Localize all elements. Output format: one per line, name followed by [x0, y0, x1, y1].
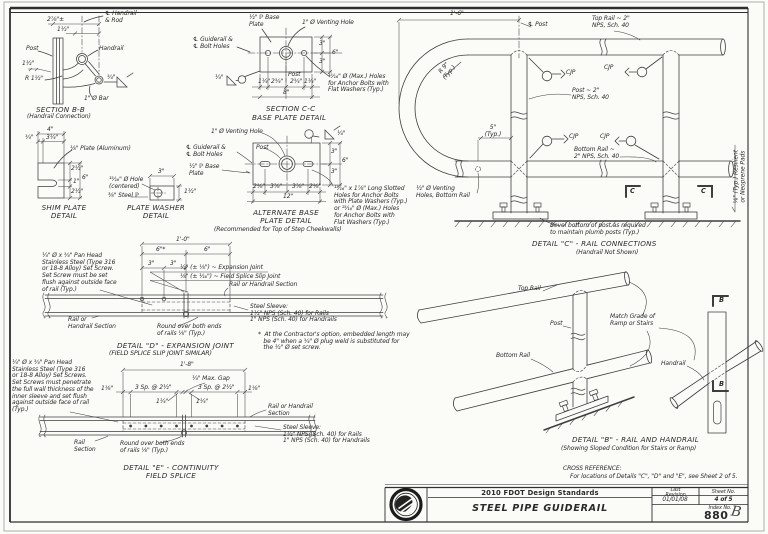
- top-rail-note: Top Rail ~ 2" NPS, Sch. 40: [592, 16, 630, 29]
- index-no-value: 880: [704, 509, 728, 522]
- match-grade-note: Match Grade of Ramp or Stairs: [610, 314, 655, 327]
- dim-label: 3⅞": [270, 184, 282, 191]
- dim-label: 2⅞"±: [47, 17, 64, 24]
- section-cut-mark: C: [701, 188, 706, 195]
- dim-label: 2¾": [290, 79, 302, 86]
- section-bb-drawing: [38, 16, 133, 104]
- sheet-no-value: 4 of 5: [701, 497, 746, 503]
- detail-b-drawing: [417, 271, 764, 433]
- alt-base-plate-subtitle: (Recommended for Top of Step Cheekwalls): [214, 227, 342, 234]
- centerline-note: ℄ Guiderail & ℄ Bolt Holes: [186, 145, 226, 158]
- set-screw-note: ¼" Ø x ¾" Pan Head Stainless Steel (Type…: [42, 253, 117, 293]
- dim-label: 3 Sp. @ 2½": [135, 385, 171, 392]
- detail-c-subtitle: (Handrail Not Shown): [576, 250, 638, 257]
- pads-note: ⅛" (Typ.) Resilient or Neoprene Pads: [733, 141, 746, 213]
- rail-section-note: Rail or Handrail Section: [268, 404, 313, 417]
- dim-label: 4": [47, 127, 53, 134]
- section-cc-drawing: [227, 27, 342, 85]
- section-cut-mark: B: [719, 381, 724, 388]
- plate-washer-title: PLATE WASHER DETAIL: [116, 204, 196, 220]
- dim-label: 1'-0": [176, 237, 190, 244]
- dim-label: 2⅛": [309, 184, 321, 191]
- round-over-note: Round over both ends of rails ⅛" (Typ.): [120, 441, 184, 454]
- post-label: Post: [26, 46, 38, 53]
- detail-d-title: DETAIL "D" - EXPANSION JOINT: [117, 342, 234, 350]
- slotted-holes-note: ¹⁵⁄₁₆" x 1⅞" Long Slotted Holes for Anch…: [334, 186, 408, 226]
- detail-d-subtitle: (FIELD SPLICE SLIP JOINT SIMILAR): [109, 351, 212, 358]
- bottom-rail-label: Bottom Rail: [496, 353, 530, 360]
- detail-c-title: DETAIL "C" - RAIL CONNECTIONS: [532, 240, 657, 248]
- centerline-note: ℄ Guiderail & ℄ Bolt Holes: [193, 37, 233, 50]
- centerline-note: ℄ Post: [528, 22, 547, 29]
- bottom-rail-note: Bottom Rail ~ 2" NPS, Sch. 40: [574, 147, 619, 160]
- cross-reference-text: For locations of Details "C", "D" and "E…: [570, 474, 737, 481]
- dim-label: 6": [342, 158, 348, 165]
- handrail-label: Handrail: [99, 46, 123, 53]
- bar-label: 1" Ø Bar: [84, 96, 109, 103]
- dim-label: 3": [331, 169, 337, 176]
- dim-label: 3": [158, 169, 164, 176]
- drawing-sheet: 2⅞"± 1½" ℄ Handrail & Rod Post Handrail …: [0, 0, 768, 534]
- dim-label: 2⅛": [253, 184, 265, 191]
- venting-note: ½" Ø Venting Holes, Bottom Rail: [416, 186, 470, 199]
- dim-label: 2¾": [271, 79, 283, 86]
- dim-label: 3⅞": [292, 184, 304, 191]
- hole-note: ¹⁵⁄₁₆" Ø Hole (centered): [109, 177, 143, 190]
- plate-washer-dims: [148, 174, 182, 202]
- section-cc-subtitle: BASE PLATE DETAIL: [252, 114, 326, 122]
- plate-note: ⅛" Plate (Aluminum): [70, 146, 131, 153]
- post-label: Post: [256, 145, 268, 152]
- dim-label: 3 Sp. @ 2½": [198, 385, 234, 392]
- section-cc-title: SECTION C-C: [266, 105, 315, 113]
- dim-label: 1½": [57, 27, 69, 34]
- post-note: Post ~ 2" NPS, Sch. 40: [572, 88, 609, 101]
- radius-label: R 1½": [25, 76, 43, 83]
- dim-label: 1⅛": [248, 386, 260, 393]
- rail-section-note: Rail or Handrail Section: [229, 282, 297, 289]
- dim-label: 1⅛": [101, 386, 113, 393]
- set-screw-note: ¼" Ø x ¾" Pan Head Stainless Steel (Type…: [12, 360, 94, 414]
- detail-b-title: DETAIL "B" - RAIL AND HANDRAIL: [572, 436, 699, 444]
- expansion-joint-note: ½" (± ⅛") ~ Expansion Joint: [180, 265, 263, 272]
- section-cut-mark: B: [719, 297, 724, 304]
- dim-label: 2½": [71, 189, 83, 196]
- dim-label: 1'-8": [180, 362, 194, 369]
- dim-label: 1½": [22, 61, 34, 68]
- dim-label: 1'-6": [450, 11, 464, 18]
- last-revision-date: 01/01/08: [653, 497, 697, 503]
- standards-label: 2010 FDOT Design Standards: [430, 489, 650, 497]
- dim-label: 6": [82, 175, 88, 182]
- section-cut-mark: C: [630, 188, 635, 195]
- weld-label: ¾": [107, 75, 115, 82]
- dim-label: ¼" Max. Gap: [192, 376, 230, 383]
- dim-label: 3": [319, 41, 325, 48]
- rail-section-note: Rail Section: [74, 440, 96, 453]
- dim-label: 1½": [184, 189, 196, 196]
- shim-plate-title: SHIM PLATE DETAIL: [28, 204, 100, 220]
- fdot-logo: [391, 490, 421, 520]
- dim-label: 3": [331, 149, 337, 156]
- dim-label: 6": [332, 50, 338, 57]
- dim-label: 5" (Typ.): [482, 125, 504, 138]
- plate-note: ½" ℙ Base Plate: [249, 15, 279, 28]
- dim-label: 6"*: [156, 247, 165, 254]
- plate-note: ½" ℙ Base Plate: [189, 164, 219, 177]
- anchor-holes-note: ¹⁵⁄₁₆" Ø (Max.) Holes for Anchor Bolts w…: [328, 74, 389, 94]
- dim-label: 1¼": [196, 399, 208, 406]
- weld-label: ¼": [337, 131, 345, 138]
- sheet-no-label: Sheet No.: [701, 490, 746, 495]
- dim-label: 3": [170, 261, 176, 268]
- sleeve-note: Steel Sleeve: 1½" NPS (Sch. 40) for Rail…: [283, 425, 370, 445]
- bevel-note: Bevel bottom of post as required to main…: [550, 223, 646, 236]
- weld-cjp-label: CJP: [569, 134, 578, 141]
- round-over-note: Round over both ends of rails ⅛" (Typ.): [157, 324, 221, 337]
- dim-label: 1¼": [258, 79, 270, 86]
- sheet-title: STEEL PIPE GUIDERAIL: [430, 503, 650, 514]
- dim-label: 3¼": [46, 135, 58, 142]
- dim-label: 1¼": [304, 79, 316, 86]
- dim-label: 2½": [71, 166, 83, 173]
- weld-cjp-label: CJP: [604, 65, 613, 72]
- sleeve-note: Steel Sleeve: 1½" NPS (Sch. 40) for Rail…: [250, 304, 337, 324]
- handrail-label: Handrail: [661, 361, 685, 368]
- dim-label: ¾": [25, 135, 33, 142]
- rail-section-note: Rail or Handrail Section: [68, 317, 116, 330]
- dim-label: 3": [319, 59, 325, 66]
- weld-cjp-label: CJP: [566, 70, 575, 77]
- detail-e-dims: [116, 368, 252, 417]
- detail-e-title: DETAIL "E" - CONTINUITY FIELD SPLICE: [105, 464, 237, 480]
- detail-b-subtitle: (Showing Sloped Condition for Stairs or …: [561, 446, 696, 453]
- contractor-option-note: * At the Contractor's option, embedded l…: [258, 332, 410, 352]
- alt-base-plate-title: ALTERNATE BASE PLATE DETAIL: [240, 209, 332, 225]
- weld-label: ¼": [215, 75, 223, 82]
- venting-note: 1" Ø Venting Hole: [211, 129, 263, 136]
- dim-label: 12": [283, 194, 293, 201]
- centerline-note: ℄ Handrail & Rod: [105, 11, 137, 24]
- weld-cjp-label: CJP: [600, 134, 609, 141]
- post-label: Post: [550, 321, 562, 328]
- section-bb-subtitle: (Handrail Connection): [27, 114, 91, 121]
- dim-label: 3": [148, 261, 154, 268]
- slip-joint-note: ⅛" (± ¹⁄₁₆") ~ Field Splice Slip Joint: [180, 274, 280, 281]
- steel-note: ⅜" Steel ℙ: [108, 193, 139, 200]
- dim-label: 1": [73, 179, 79, 186]
- cross-reference-heading: CROSS REFERENCE:: [563, 466, 621, 473]
- dim-label: 8": [283, 90, 289, 97]
- dim-label: 1¼": [156, 399, 168, 406]
- top-rail-label: Top Rail: [518, 286, 541, 293]
- venting-note: 1" Ø Venting Hole: [302, 20, 354, 27]
- dim-label: 6": [204, 247, 210, 254]
